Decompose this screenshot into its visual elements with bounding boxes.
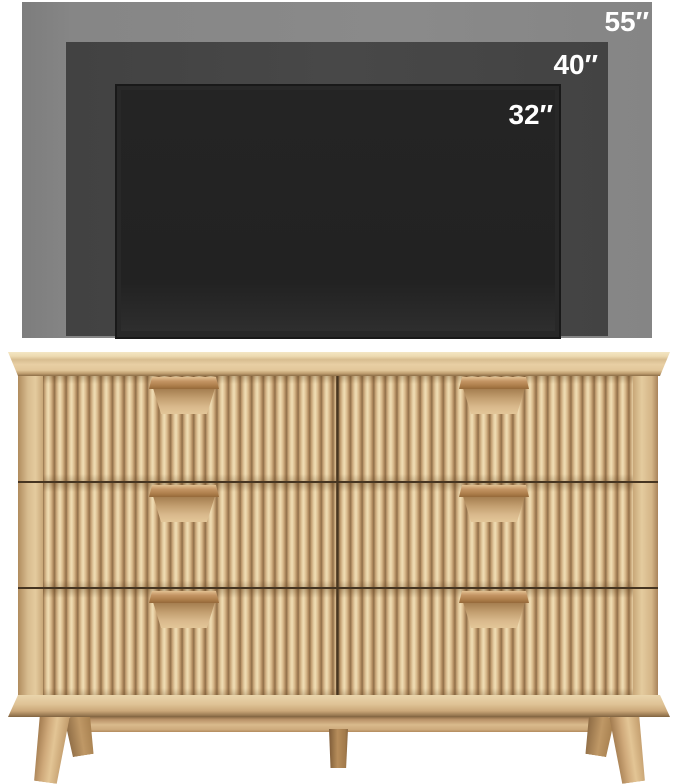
- dresser-leg-front-left: [31, 712, 70, 784]
- drawer-handle-recess-top-left: [153, 388, 215, 414]
- tv-screen: [121, 90, 555, 331]
- drawer-handle-recess-top-right: [463, 388, 525, 414]
- dresser-body: [18, 375, 658, 695]
- drawer-handle-bottom-left: [149, 591, 219, 603]
- dresser-top-molding: [8, 352, 670, 376]
- drawer-handle-middle-left: [149, 485, 219, 497]
- tv-size-label-40: 40″: [553, 51, 598, 79]
- drawer-handle-top-left: [149, 377, 219, 389]
- dresser-right-stile: [633, 375, 658, 695]
- dresser-leg-middle: [329, 729, 348, 768]
- drawer-handle-recess-bottom-left: [153, 602, 215, 628]
- drawer-divider-horizontal-2: [18, 587, 658, 589]
- drawer-handle-recess-middle-right: [463, 496, 525, 522]
- drawer-handle-top-right: [459, 377, 529, 389]
- dresser-left-stile: [18, 375, 43, 695]
- tv-size-label-32: 32″: [508, 101, 553, 129]
- drawer-handle-recess-middle-left: [153, 496, 215, 522]
- tv-outline-32: 32″: [115, 84, 561, 339]
- dresser-bottom-molding: [8, 695, 670, 717]
- drawer-divider-vertical: [336, 375, 339, 695]
- product-image-canvas: 55″ 40″ 32″: [0, 0, 679, 784]
- tv-size-label-55: 55″: [604, 8, 649, 36]
- drawer-divider-horizontal-1: [18, 481, 658, 483]
- dresser-leg-front-right: [609, 712, 648, 784]
- drawer-handle-middle-right: [459, 485, 529, 497]
- drawer-handle-bottom-right: [459, 591, 529, 603]
- drawer-handle-recess-bottom-right: [463, 602, 525, 628]
